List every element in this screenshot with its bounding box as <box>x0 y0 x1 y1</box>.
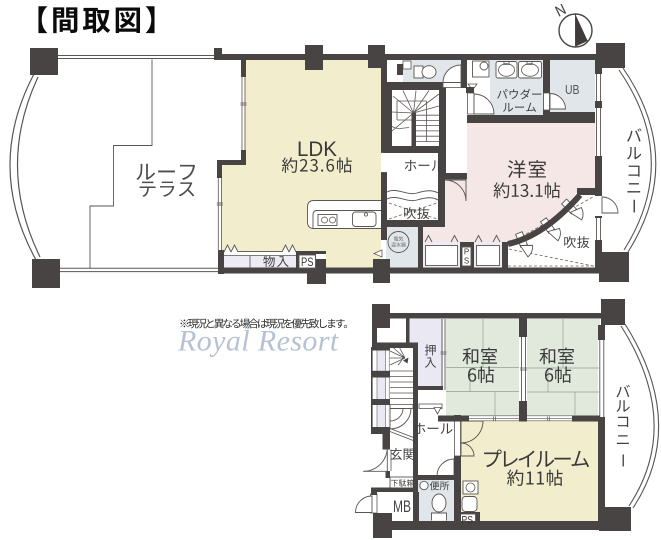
svg-text:P: P <box>464 248 469 257</box>
svg-text:S: S <box>464 257 469 266</box>
svg-text:LDK: LDK <box>297 137 338 161</box>
svg-text:PS: PS <box>462 515 474 527</box>
svg-text:UB: UB <box>565 82 580 97</box>
svg-text:Royal Resort: Royal Resort <box>177 325 339 358</box>
svg-text:MB: MB <box>393 497 411 516</box>
svg-text:PS: PS <box>301 255 314 269</box>
